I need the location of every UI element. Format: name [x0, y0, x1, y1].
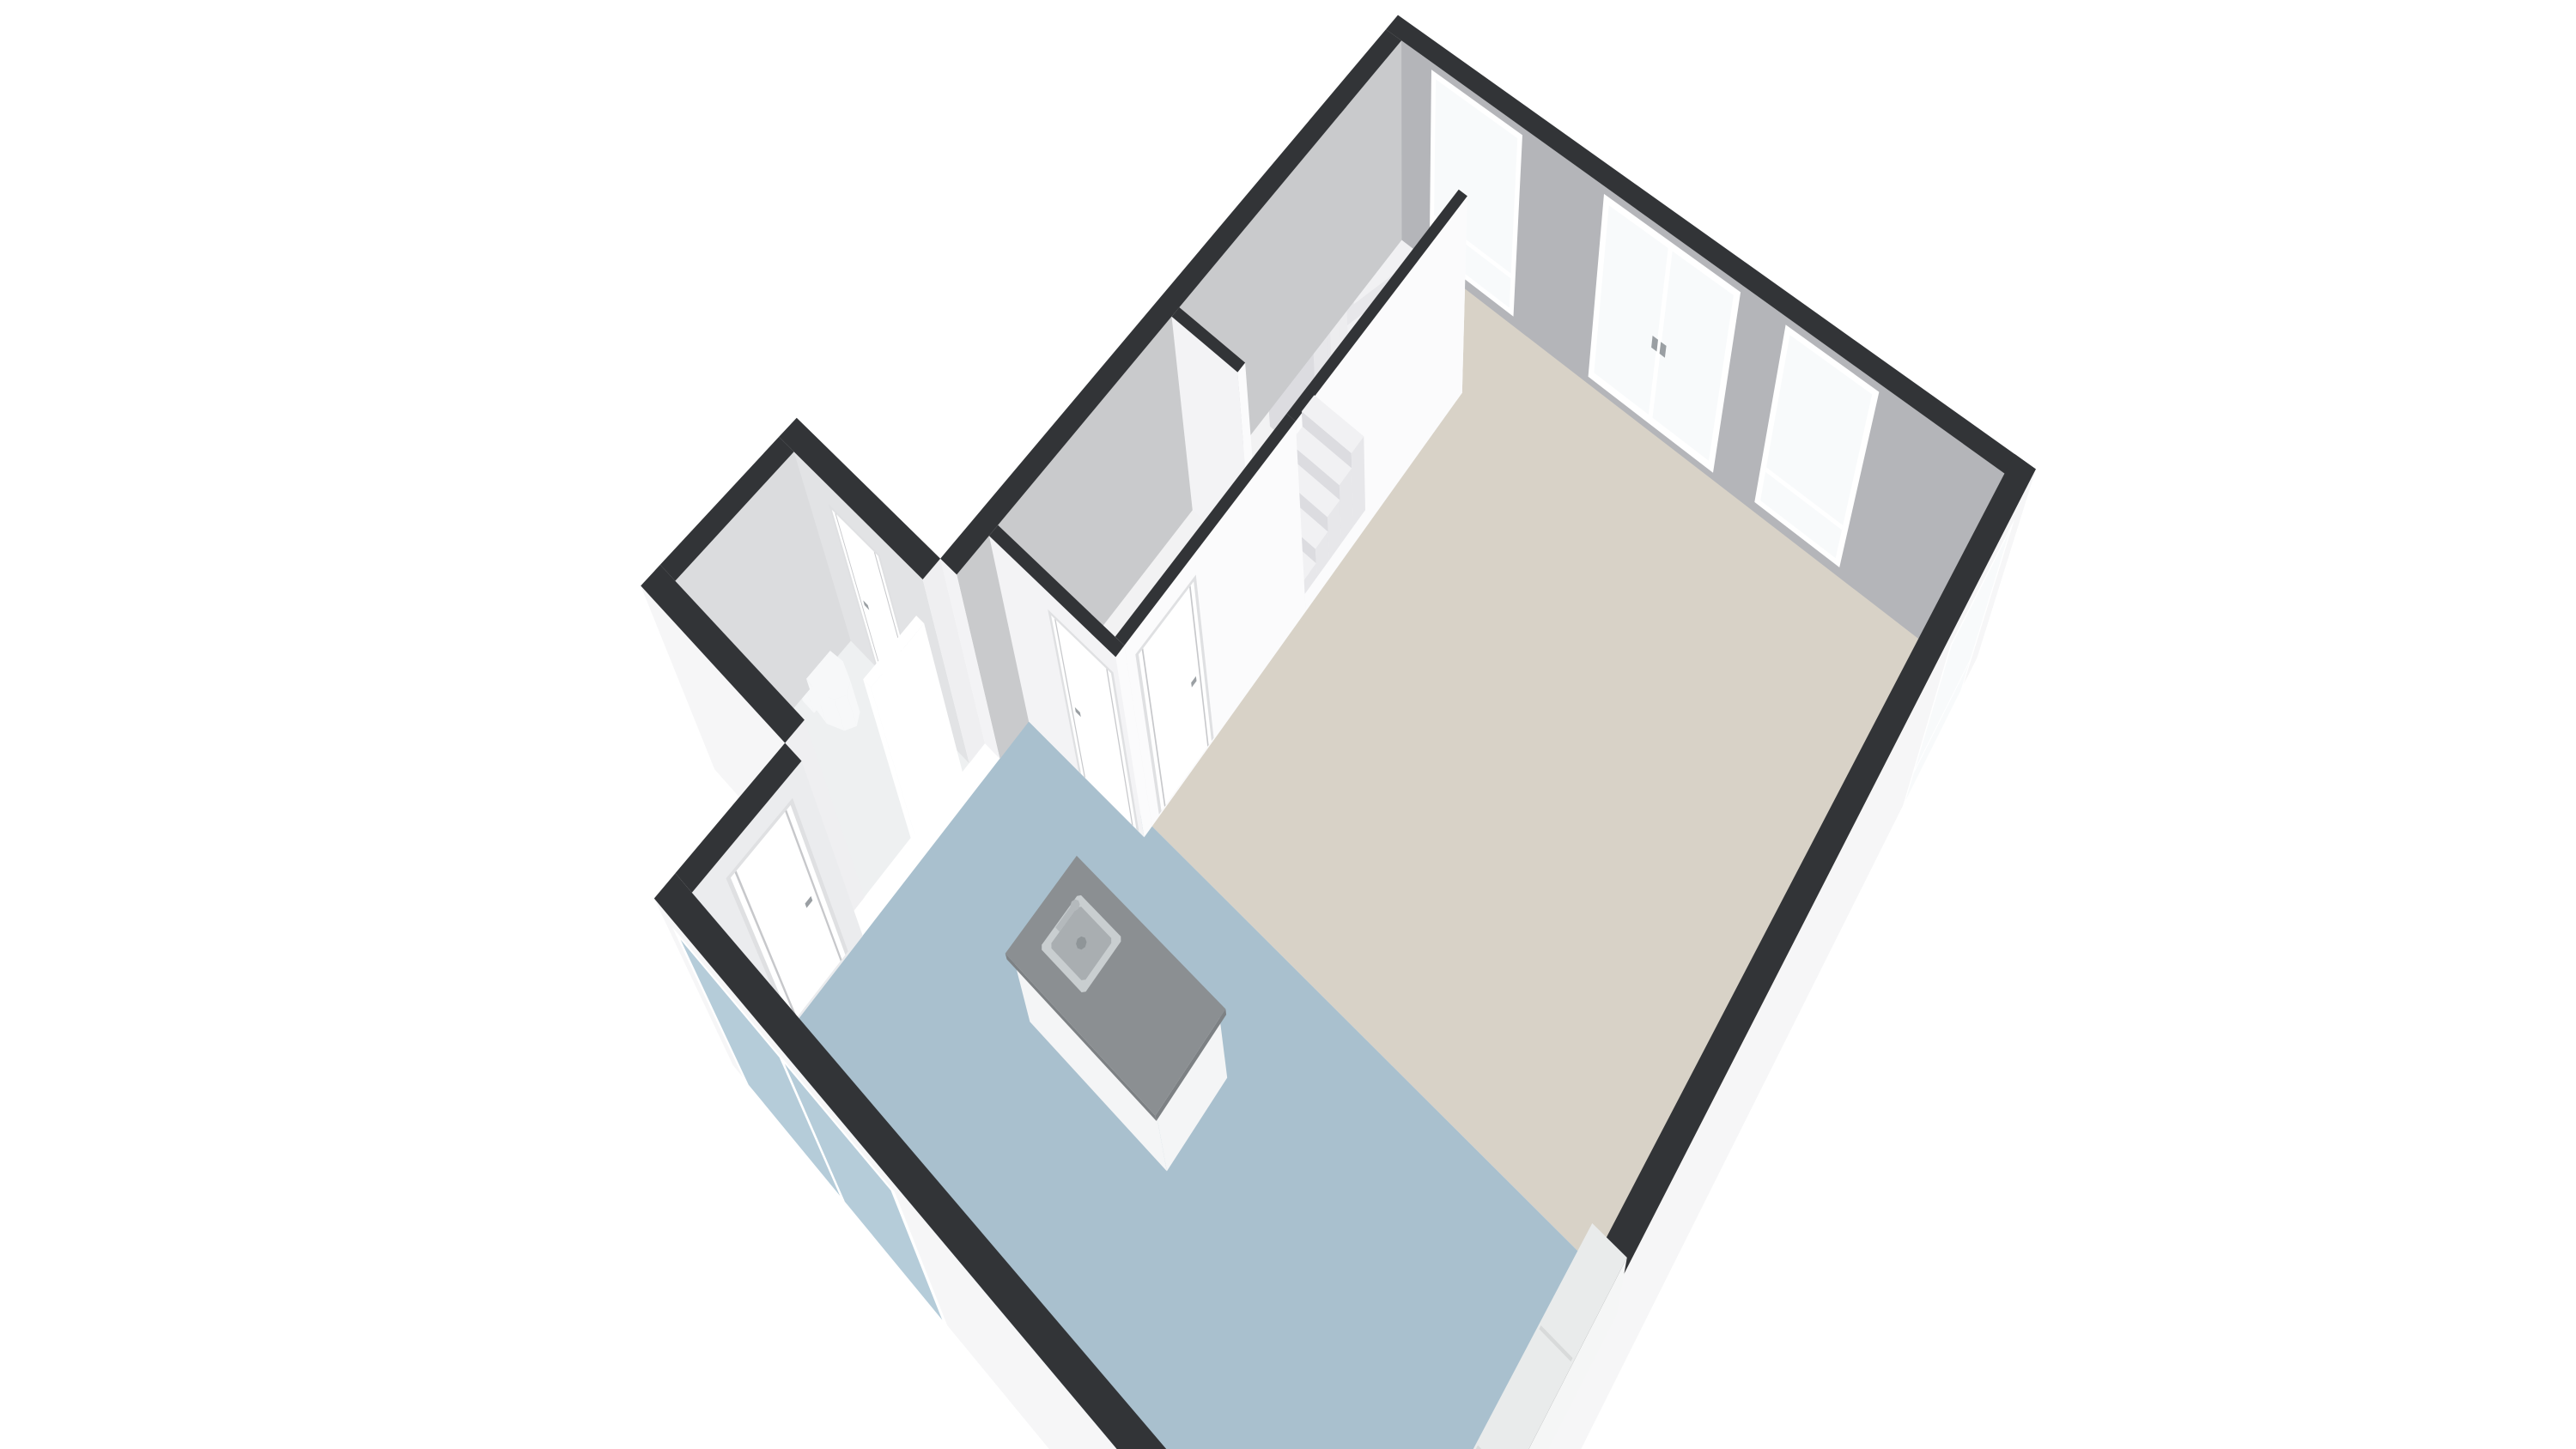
floorplan-stage [0, 0, 2576, 1449]
floor-plan-3d-svg [0, 0, 2576, 1449]
